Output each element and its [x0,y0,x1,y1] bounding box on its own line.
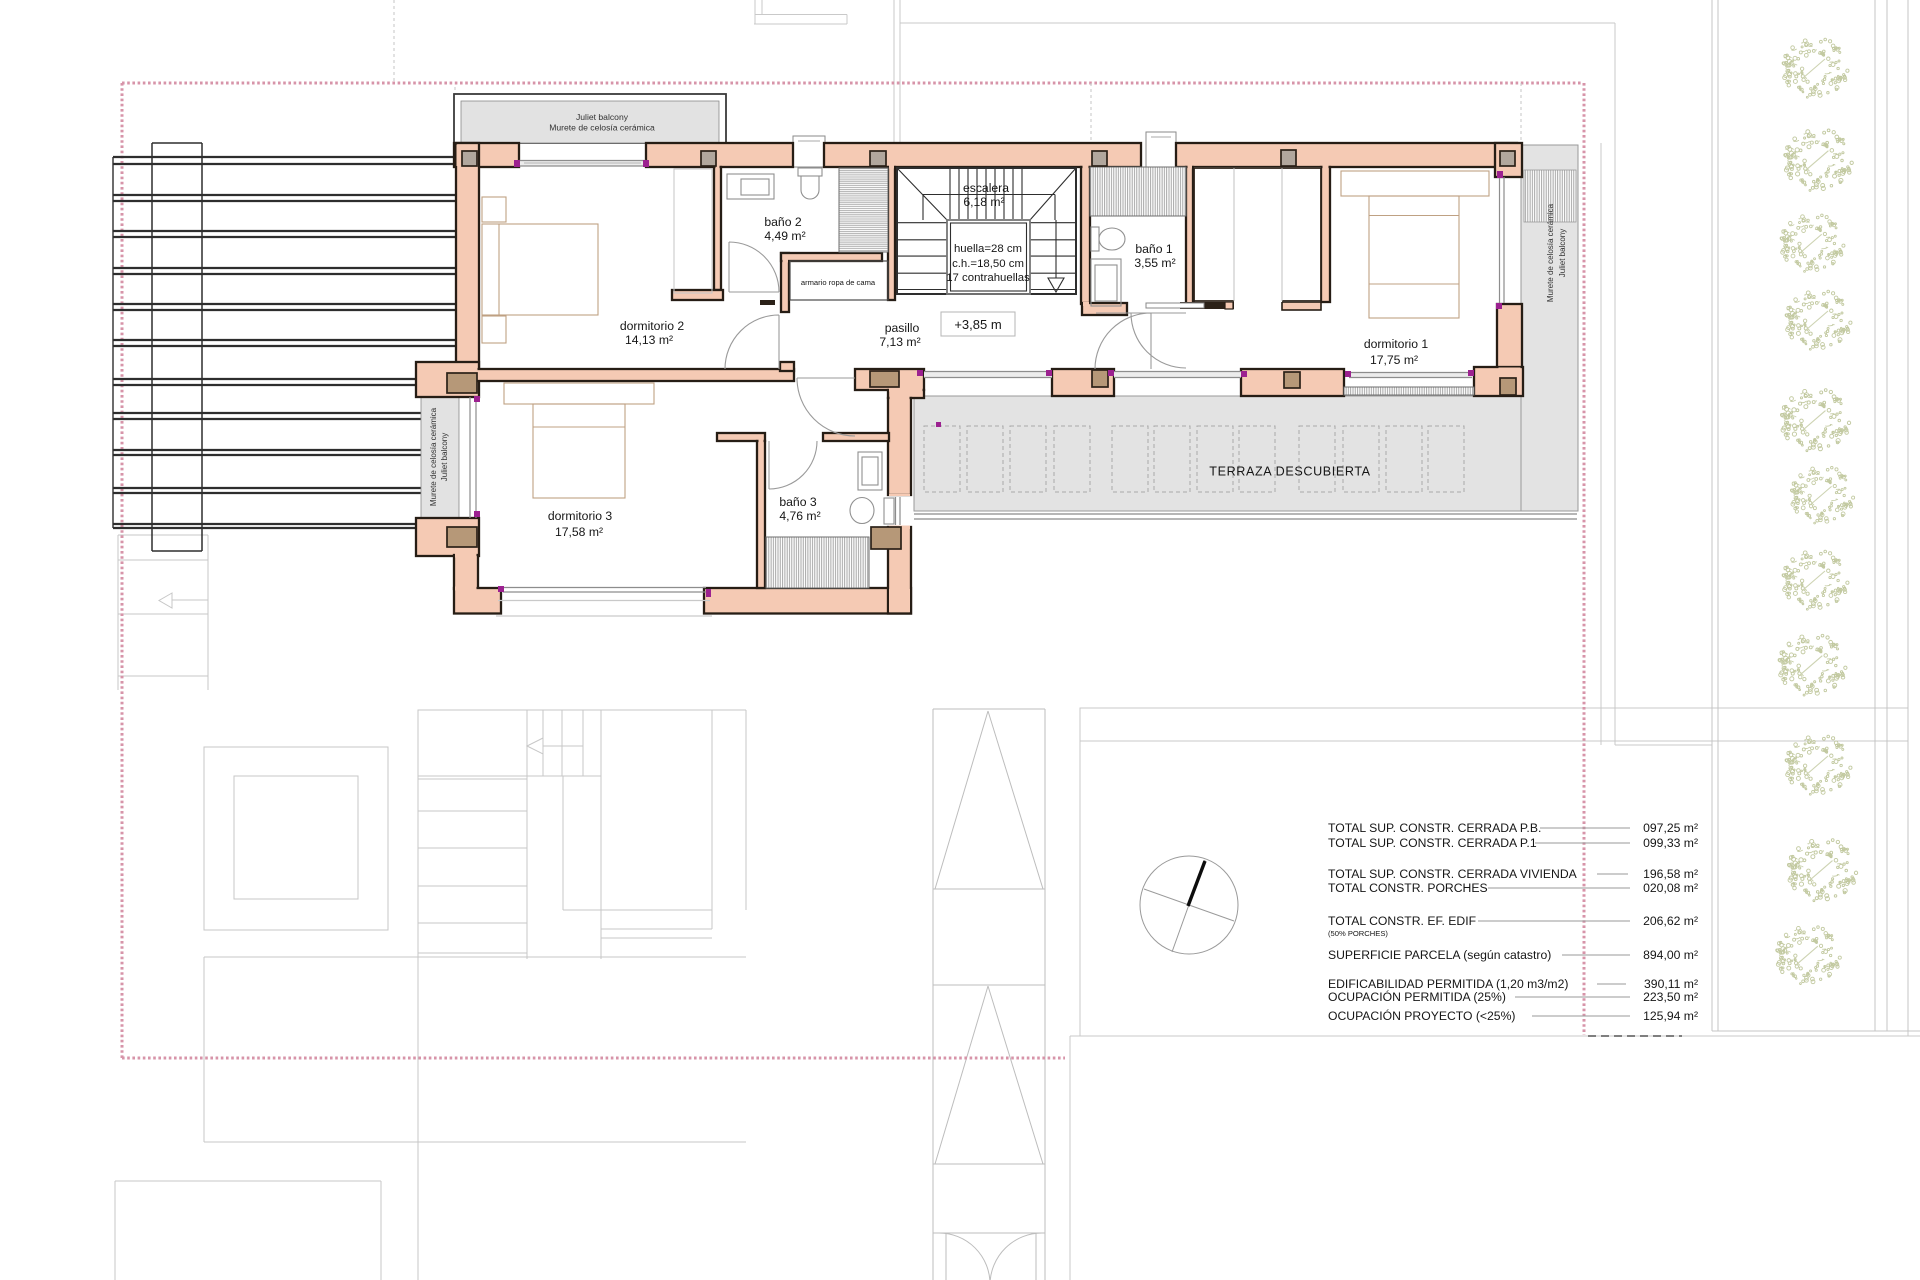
svg-text:TOTAL SUP. CONSTR. CERRADA VIV: TOTAL SUP. CONSTR. CERRADA VIVIENDA [1328,867,1578,881]
svg-text:TOTAL CONSTR. EF. EDIF: TOTAL CONSTR. EF. EDIF [1328,914,1476,928]
svg-text:Murete de celosía cerámica: Murete de celosía cerámica [429,407,438,506]
svg-text:pasillo: pasillo [885,321,920,335]
svg-text:armario ropa de cama: armario ropa de cama [801,278,876,287]
svg-text:14,13 m²: 14,13 m² [625,333,673,347]
svg-text:3,55 m²: 3,55 m² [1134,256,1175,270]
svg-text:baño 3: baño 3 [779,495,816,509]
svg-text:OCUPACIÓN PROYECTO (<25%): OCUPACIÓN PROYECTO (<25%) [1328,1008,1515,1023]
svg-text:dormitorio 1: dormitorio 1 [1364,337,1429,351]
svg-text:escalera: escalera [963,181,1009,195]
svg-text:206,62 m²: 206,62 m² [1643,914,1698,928]
svg-text:097,25 m²: 097,25 m² [1643,821,1698,835]
svg-text:TOTAL CONSTR. PORCHES: TOTAL CONSTR. PORCHES [1328,881,1488,895]
svg-text:EDIFICABILIDAD PERMITIDA (1,20: EDIFICABILIDAD PERMITIDA (1,20 m3/m2) [1328,977,1568,991]
svg-text:196,58 m²: 196,58 m² [1643,867,1698,881]
svg-text:894,00 m²: 894,00 m² [1643,948,1698,962]
svg-text:Murete de celosía cerámica: Murete de celosía cerámica [1546,203,1555,302]
svg-text:4,49 m²: 4,49 m² [764,229,805,243]
svg-text:Juliet balcony: Juliet balcony [440,433,449,481]
svg-text:dormitorio 2: dormitorio 2 [620,319,685,333]
svg-text:099,33 m²: 099,33 m² [1643,836,1698,850]
svg-text:baño 2: baño 2 [764,215,801,229]
svg-text:c.h.=18,50 cm: c.h.=18,50 cm [952,258,1024,270]
svg-text:17,58 m²: 17,58 m² [555,525,603,539]
svg-text:OCUPACIÓN PERMITIDA (25%): OCUPACIÓN PERMITIDA (25%) [1328,989,1506,1004]
svg-text:390,11 m²: 390,11 m² [1644,977,1698,991]
svg-text:17 contrahuellas: 17 contrahuellas [946,272,1030,284]
svg-text:125,94 m²: 125,94 m² [1643,1009,1698,1023]
svg-text:+3,85 m: +3,85 m [954,317,1001,332]
svg-text:TOTAL SUP. CONSTR. CERRADA P.B: TOTAL SUP. CONSTR. CERRADA P.B. [1328,821,1541,835]
svg-text:TERRAZA DESCUBIERTA: TERRAZA DESCUBIERTA [1209,465,1370,479]
svg-text:4,76 m²: 4,76 m² [779,509,820,523]
svg-text:17,75 m²: 17,75 m² [1370,353,1418,367]
svg-text:huella=28 cm: huella=28 cm [954,243,1022,255]
svg-text:baño 1: baño 1 [1135,242,1172,256]
svg-text:Juliet balcony: Juliet balcony [1558,229,1567,277]
svg-text:(50% PORCHES): (50% PORCHES) [1328,929,1388,938]
svg-text:TOTAL SUP. CONSTR. CERRADA P.1: TOTAL SUP. CONSTR. CERRADA P.1 [1328,836,1537,850]
svg-text:Murete de celosía cerámica: Murete de celosía cerámica [549,123,655,133]
svg-text:7,13 m²: 7,13 m² [879,335,920,349]
svg-text:Juliet balcony: Juliet balcony [576,112,629,122]
svg-text:SUPERFICIE PARCELA (según cata: SUPERFICIE PARCELA (según catastro) [1328,948,1551,962]
svg-text:6,18 m²: 6,18 m² [963,195,1004,209]
svg-text:020,08 m²: 020,08 m² [1643,881,1698,895]
svg-text:223,50 m²: 223,50 m² [1643,990,1698,1004]
svg-text:dormitorio 3: dormitorio 3 [548,509,613,523]
